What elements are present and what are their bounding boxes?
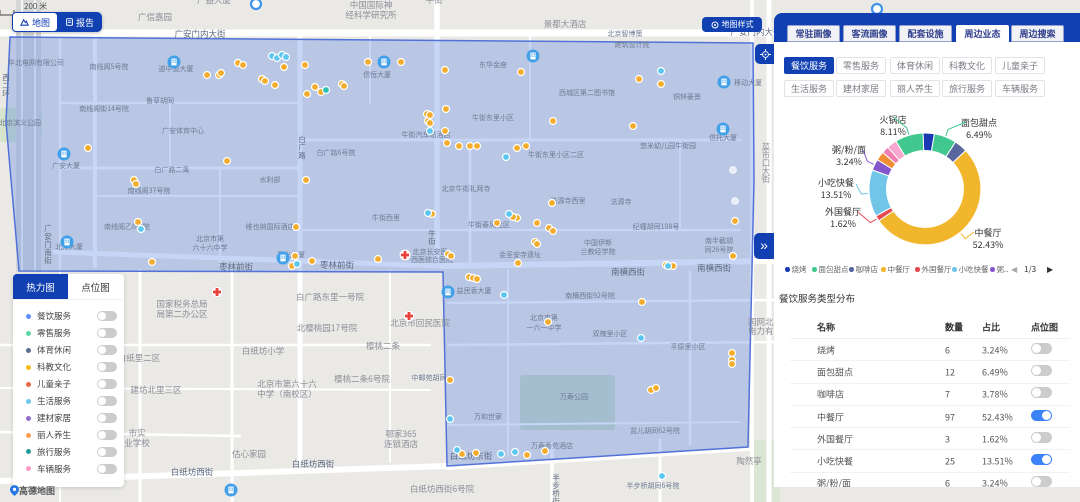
svg-text:盆儿胡同62号院: 盆儿胡同62号院 <box>630 426 680 436</box>
svg-text:6.49%: 6.49% <box>966 128 992 141</box>
svg-text:北京市回民医院: 北京市回民医院 <box>390 317 450 329</box>
svg-text:52.43%: 52.43% <box>973 238 1004 251</box>
svg-text:13.51%: 13.51% <box>821 188 852 201</box>
svg-text:广安门内大街: 广安门内大街 <box>174 28 226 40</box>
svg-text:牛街: 牛街 <box>425 0 443 6</box>
svg-text:万寿公园: 万寿公园 <box>560 392 588 402</box>
svg-text:广益大厦: 广益大厦 <box>197 0 232 6</box>
svg-text:白广路二条: 白广路二条 <box>155 165 190 175</box>
svg-text:兰教经学院: 兰教经学院 <box>581 247 616 257</box>
svg-text:景都大酒店: 景都大酒店 <box>544 18 587 30</box>
svg-text:广安门南街: 广安门南街 <box>44 223 52 266</box>
svg-text:移动大厦: 移动大厦 <box>734 78 762 88</box>
svg-text:连锁酒店: 连锁酒店 <box>384 438 419 450</box>
svg-text:中学（南校区）: 中学（南校区） <box>257 388 317 400</box>
svg-text:北樱桃园17号院: 北樱桃园17号院 <box>297 322 358 334</box>
svg-text:六十六中学: 六十六中学 <box>193 243 228 253</box>
svg-text:万寿香苑酒店: 万寿香苑酒店 <box>531 441 573 451</box>
svg-text:白纸坊小学: 白纸坊小学 <box>242 345 285 357</box>
svg-text:半步桥街: 半步桥街 <box>552 472 560 502</box>
svg-text:局第二办公区: 局第二办公区 <box>156 308 208 320</box>
svg-text:益民香大厦: 益民香大厦 <box>457 286 492 296</box>
svg-text:白纸坊西街: 白纸坊西街 <box>292 458 335 470</box>
svg-text:纪槿胡同108号: 纪槿胡同108号 <box>633 222 680 232</box>
svg-text:牛街春风社区: 牛街春风社区 <box>468 220 510 230</box>
svg-text:万和世家: 万和世家 <box>474 412 502 422</box>
svg-text:白广路东里一号院: 白广路东里一号院 <box>296 291 365 303</box>
svg-text:南线阁街14号院: 南线阁街14号院 <box>79 104 129 114</box>
svg-text:鲁草胡同: 鲁草胡同 <box>146 96 174 106</box>
svg-text:南横西街92号院: 南横西街92号院 <box>565 291 615 301</box>
svg-text:广信嘉园: 广信嘉园 <box>138 11 172 23</box>
svg-text:白广路: 白广路 <box>298 134 306 161</box>
svg-text:广安体育中心: 广安体育中心 <box>162 126 204 136</box>
svg-text:枣林前街: 枣林前街 <box>219 261 254 273</box>
svg-text:双槐里小区: 双槐里小区 <box>593 329 628 339</box>
svg-text:北京牛街礼拜寺: 北京牛街礼拜寺 <box>442 184 491 194</box>
svg-text:建筑设计院: 建筑设计院 <box>615 40 650 50</box>
svg-text:业学校: 业学校 <box>124 437 150 449</box>
svg-text:南线阁5号院: 南线阁5号院 <box>90 62 129 72</box>
svg-text:悠米幼儿园牛街园: 悠米幼儿园牛街园 <box>640 141 696 151</box>
svg-text:樱桃二条6号院: 樱桃二条6号院 <box>334 373 390 385</box>
svg-text:广安大厦: 广安大厦 <box>52 161 80 171</box>
svg-text:半步桥胡同6号院: 半步桥胡同6号院 <box>627 481 680 491</box>
svg-text:铜锌豪景: 铜锌豪景 <box>673 92 701 102</box>
svg-text:法源寺: 法源寺 <box>611 197 632 207</box>
svg-text:建坊北里三区: 建坊北里三区 <box>130 384 182 396</box>
svg-text:菜市口大街: 菜市口大街 <box>762 141 771 185</box>
svg-text:信恒大厦: 信恒大厦 <box>363 70 391 80</box>
svg-text:金圣安寺遗址: 金圣安寺遗址 <box>499 250 541 260</box>
svg-text:白纸坊西街: 白纸坊西街 <box>171 466 214 478</box>
svg-text:牛街: 牛街 <box>428 228 436 247</box>
svg-text:8.11%: 8.11% <box>880 125 906 138</box>
svg-text:估心家园: 估心家园 <box>232 448 266 460</box>
svg-text:南横西街: 南横西街 <box>611 266 646 278</box>
svg-text:南横西街: 南横西街 <box>697 262 732 274</box>
svg-text:1.62%: 1.62% <box>830 217 856 230</box>
svg-text:平原里小区: 平原里小区 <box>671 342 706 352</box>
svg-text:枣林前街: 枣林前街 <box>320 259 355 271</box>
svg-text:维也纳国际酒店: 维也纳国际酒店 <box>246 222 295 232</box>
svg-text:牛街东里小区: 牛街东里小区 <box>472 113 514 123</box>
svg-text:一六一中学: 一六一中学 <box>527 323 562 333</box>
svg-text:3.24%: 3.24% <box>836 155 862 168</box>
svg-text:陶然亭: 陶然亭 <box>736 455 762 467</box>
svg-text:牛街西里: 牛街西里 <box>372 213 400 223</box>
svg-text:经科学研究所: 经科学研究所 <box>345 9 397 21</box>
svg-text:牛街东里小区二区: 牛街东里小区二区 <box>528 150 584 160</box>
svg-text:西城区第二图书馆: 西城区第二图书馆 <box>559 88 615 98</box>
svg-text:白广路6号院: 白广路6号院 <box>317 148 356 158</box>
svg-text:华北电网有限公司: 华北电网有限公司 <box>8 58 64 68</box>
svg-text:白纸坊西街6号院: 白纸坊西街6号院 <box>410 483 475 495</box>
svg-text:樱桃二条: 樱桃二条 <box>366 340 401 352</box>
svg-text:白纸里二区: 白纸里二区 <box>118 352 161 364</box>
svg-text:水利部: 水利部 <box>260 175 281 185</box>
svg-text:北京智博策: 北京智博策 <box>608 29 643 39</box>
svg-text:同26号院: 同26号院 <box>705 245 734 255</box>
svg-text:北京滨义公园: 北京滨义公园 <box>0 118 41 128</box>
svg-text:中邮苑胡同: 中邮苑胡同 <box>412 373 447 383</box>
svg-text:东华金座: 东华金座 <box>479 60 507 70</box>
svg-text:西二环: 西二环 <box>2 72 10 99</box>
